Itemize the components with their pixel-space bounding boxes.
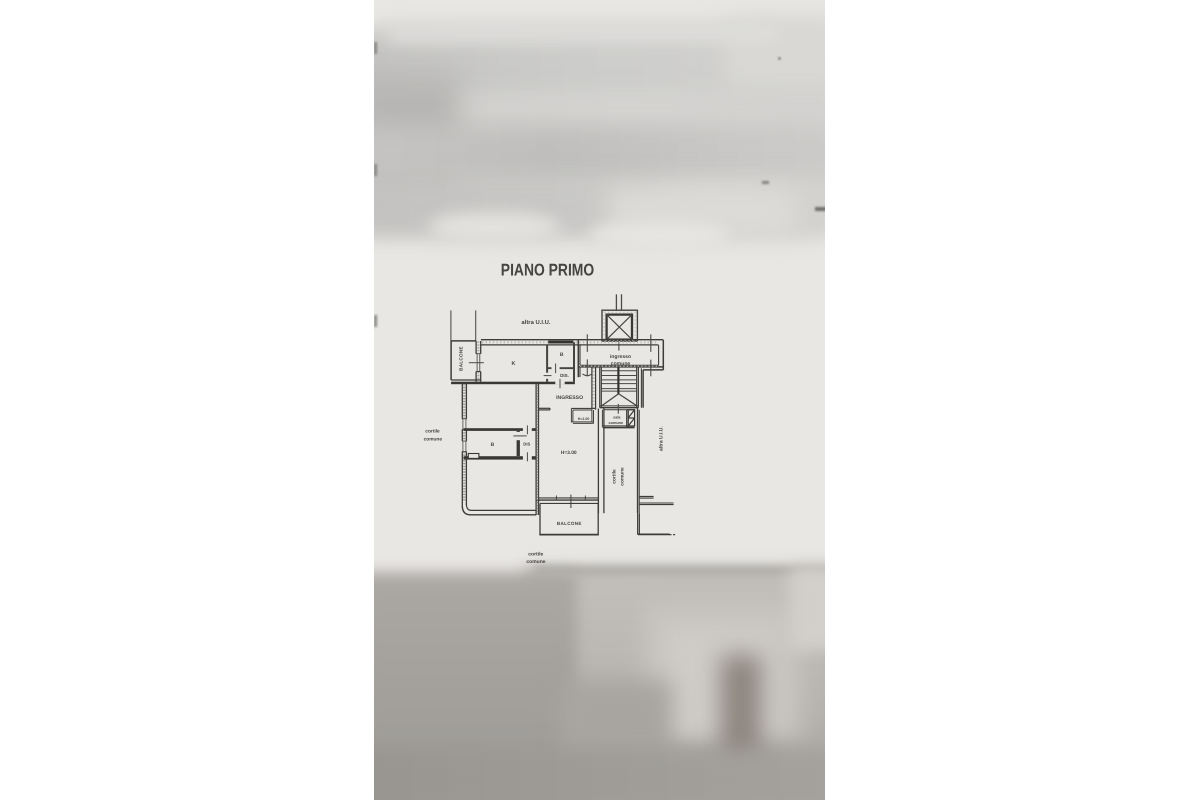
svg-text:altra U.I.U.: altra U.I.U. — [659, 426, 665, 451]
svg-text:H=1.00: H=1.00 — [578, 417, 590, 421]
svg-text:comune: comune — [609, 421, 624, 425]
svg-text:PIANO PRIMO: PIANO PRIMO — [501, 260, 594, 279]
svg-text:comune: comune — [424, 437, 443, 442]
svg-text:comune: comune — [620, 467, 625, 486]
svg-text:altra U.I.U.: altra U.I.U. — [521, 319, 550, 326]
svg-text:cortile: cortile — [425, 429, 440, 435]
svg-text:B: B — [560, 352, 564, 358]
svg-text:DIS: DIS — [523, 442, 530, 447]
svg-text:B: B — [491, 442, 495, 448]
svg-text:DIS.: DIS. — [560, 373, 569, 378]
svg-text:comune: comune — [611, 361, 631, 367]
svg-text:ingresso: ingresso — [610, 354, 631, 360]
svg-text:cortile: cortile — [611, 469, 617, 484]
svg-text:INGRESSO: INGRESSO — [556, 395, 583, 401]
svg-text:cortile: cortile — [528, 552, 543, 558]
svg-text:K: K — [512, 361, 516, 367]
svg-text:H=3.00: H=3.00 — [561, 450, 577, 456]
svg-text:comune: comune — [526, 559, 545, 565]
svg-text:BALCONE: BALCONE — [459, 346, 464, 371]
svg-text:BALCONE: BALCONE — [557, 521, 582, 526]
svg-text:sala: sala — [613, 416, 621, 420]
